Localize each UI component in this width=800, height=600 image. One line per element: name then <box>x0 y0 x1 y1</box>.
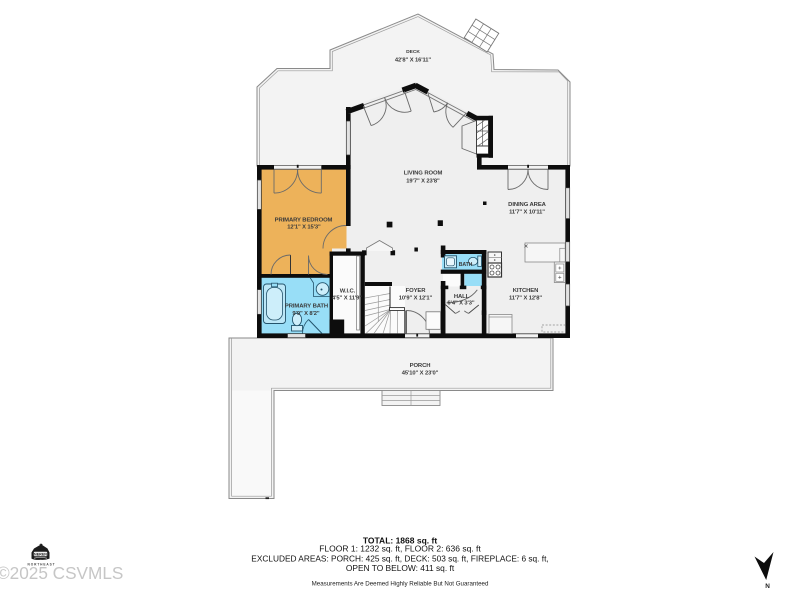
svg-text:HALL: HALL <box>454 294 470 300</box>
svg-text:6'4" X 3'3": 6'4" X 3'3" <box>447 301 474 307</box>
svg-text:DECK: DECK <box>406 49 420 55</box>
svg-text:11'7" X 12'8": 11'7" X 12'8" <box>509 296 542 302</box>
svg-text:12'1" X 15'3": 12'1" X 15'3" <box>287 225 321 231</box>
svg-text:NORTHEAST: NORTHEAST <box>28 563 56 567</box>
svg-text:42'8" X 16'11": 42'8" X 16'11" <box>395 58 432 64</box>
svg-text:OPEN TO BELOW: 411 sq. ft: OPEN TO BELOW: 411 sq. ft <box>346 563 455 573</box>
svg-text:BATH: BATH <box>459 262 473 268</box>
svg-text:PORCH: PORCH <box>410 363 431 369</box>
svg-text:©2025 CSVMLS: ©2025 CSVMLS <box>0 563 123 583</box>
svg-text:N: N <box>765 583 770 590</box>
svg-text:4'5" X 11'9": 4'5" X 11'9" <box>332 296 362 302</box>
svg-text:NEREN: NEREN <box>34 553 47 557</box>
svg-text:19'7" X 23'8": 19'7" X 23'8" <box>406 179 440 185</box>
svg-text:PRIMARY BATH: PRIMARY BATH <box>285 304 328 310</box>
svg-text:LIVING ROOM: LIVING ROOM <box>404 171 443 177</box>
svg-text:45'10" X 23'0": 45'10" X 23'0" <box>402 371 439 377</box>
svg-text:9'9" X 8'2": 9'9" X 8'2" <box>292 311 319 317</box>
svg-text:11'7" X 10'11": 11'7" X 10'11" <box>509 210 545 216</box>
svg-text:DINING AREA: DINING AREA <box>508 202 546 208</box>
svg-text:PRIMARY BEDROOM: PRIMARY BEDROOM <box>275 218 333 224</box>
svg-text:FLOOR 1: 1232 sq. ft, FLOOR 2:: FLOOR 1: 1232 sq. ft, FLOOR 2: 636 sq. f… <box>319 544 481 554</box>
svg-text:W.I.C.: W.I.C. <box>340 289 356 295</box>
svg-text:Measurements Are Deemed Highly: Measurements Are Deemed Highly Reliable … <box>312 581 489 588</box>
svg-text:FOYER: FOYER <box>406 288 427 294</box>
svg-text:10'9" X 12'1": 10'9" X 12'1" <box>399 296 433 302</box>
svg-text:KITCHEN: KITCHEN <box>513 288 538 294</box>
